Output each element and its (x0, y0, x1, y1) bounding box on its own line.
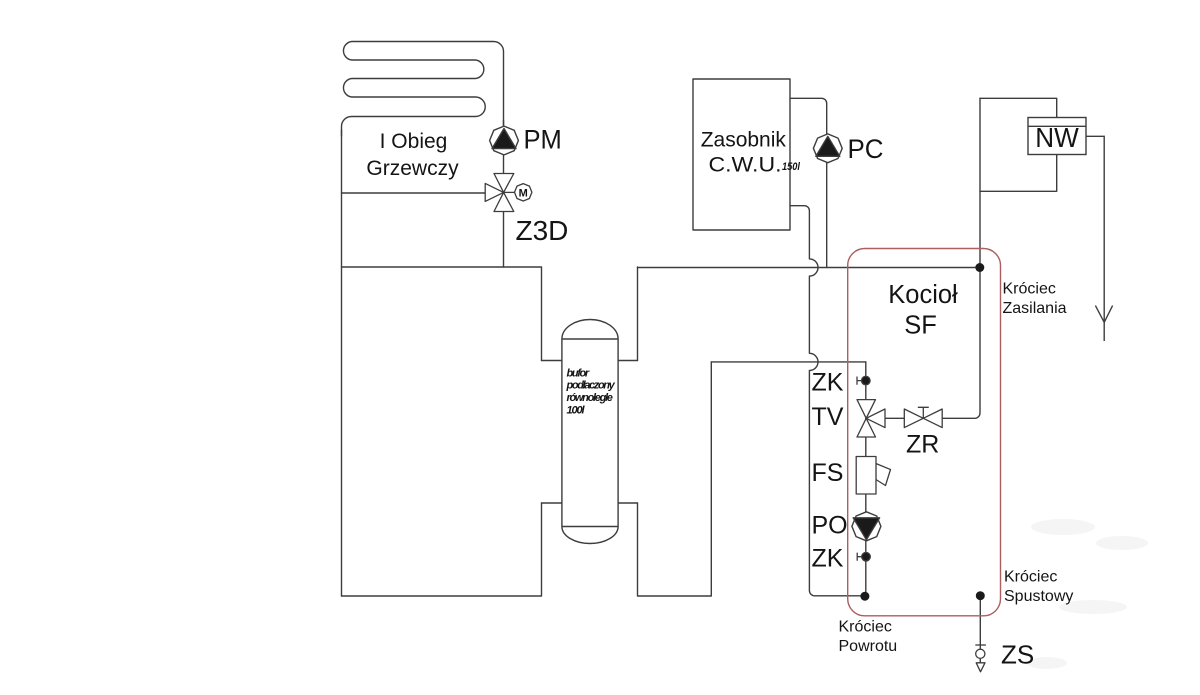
svg-text:ZK: ZK (812, 544, 844, 572)
svg-text:SF: SF (904, 312, 937, 340)
svg-text:bufor: bufor (567, 367, 590, 379)
svg-text:PC: PC (848, 134, 884, 164)
svg-text:równolegle: równolegle (567, 392, 613, 404)
svg-text:C.W.U.: C.W.U. (709, 154, 782, 177)
svg-text:FS: FS (812, 459, 844, 487)
svg-text:PM: PM (524, 124, 562, 154)
svg-text:Zasilania: Zasilania (1003, 300, 1067, 317)
svg-text:M: M (519, 187, 528, 199)
svg-text:TV: TV (812, 403, 844, 431)
svg-text:I Obieg: I Obieg (380, 130, 448, 153)
svg-text:ZK: ZK (812, 369, 844, 397)
svg-text:Króciec: Króciec (1003, 281, 1056, 298)
svg-text:podłaczony: podłaczony (566, 380, 616, 392)
svg-text:Z3D: Z3D (516, 215, 569, 246)
svg-text:Króciec: Króciec (1004, 569, 1057, 586)
svg-text:ZS: ZS (1001, 640, 1034, 670)
svg-text:ZR: ZR (906, 431, 939, 459)
svg-text:NW: NW (1035, 122, 1079, 153)
svg-text:Kocioł: Kocioł (888, 281, 958, 309)
svg-text:Spustowy: Spustowy (1004, 588, 1073, 605)
svg-text:Grzewczy: Grzewczy (366, 157, 459, 180)
svg-text:Zasobnik: Zasobnik (701, 129, 787, 152)
svg-text:150l: 150l (782, 161, 801, 173)
svg-text:Powrotu: Powrotu (839, 638, 898, 655)
svg-text:PO: PO (812, 512, 848, 540)
svg-text:100l: 100l (567, 404, 586, 416)
svg-text:Króciec: Króciec (839, 619, 892, 636)
